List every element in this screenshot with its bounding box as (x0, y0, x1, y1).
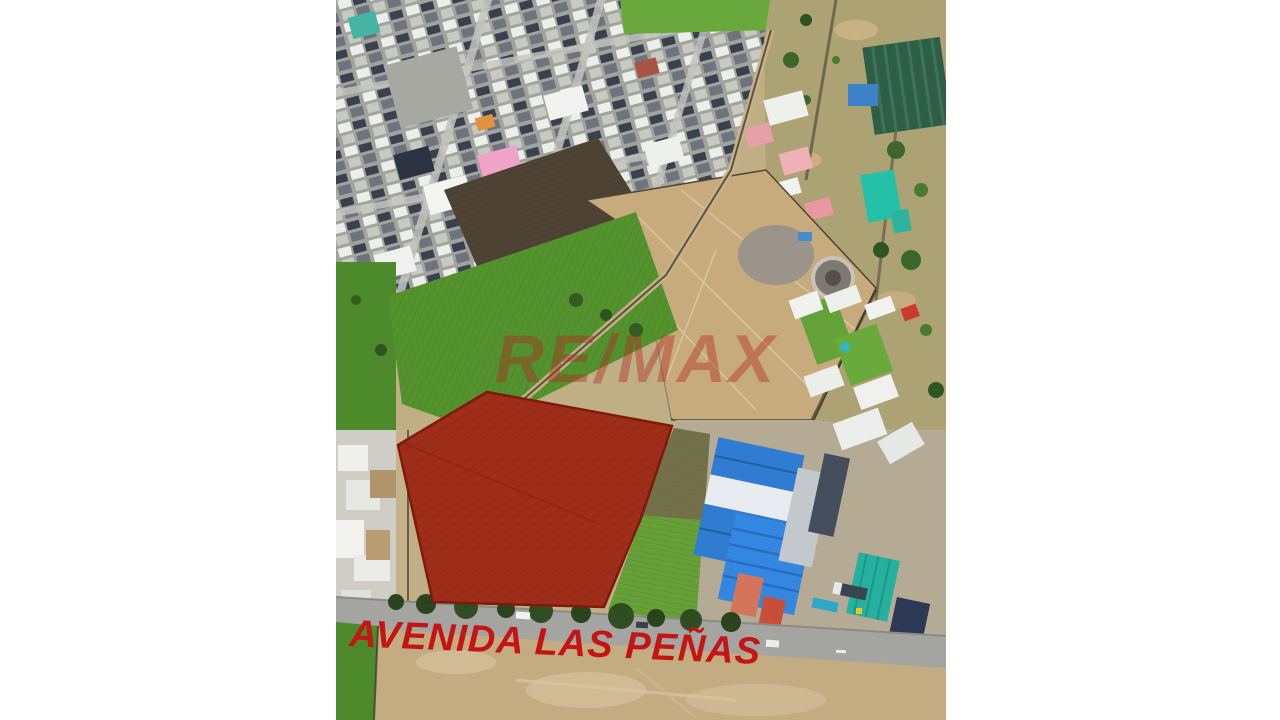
blue-tarp (798, 232, 812, 241)
sports-lawn (620, 0, 774, 34)
pool (840, 342, 850, 352)
teal-tarp-small (890, 209, 912, 234)
left-buildings-strip (336, 430, 408, 615)
screenshot-canvas: RE/MAX AVENIDA LAS PEÑAS (0, 0, 1280, 720)
aerial-photo-svg: RE/MAX AVENIDA LAS PEÑAS (336, 0, 946, 720)
remax-watermark: RE/MAX (495, 321, 778, 397)
blue-roof (848, 84, 878, 106)
aerial-photo: RE/MAX AVENIDA LAS PEÑAS (336, 0, 946, 720)
